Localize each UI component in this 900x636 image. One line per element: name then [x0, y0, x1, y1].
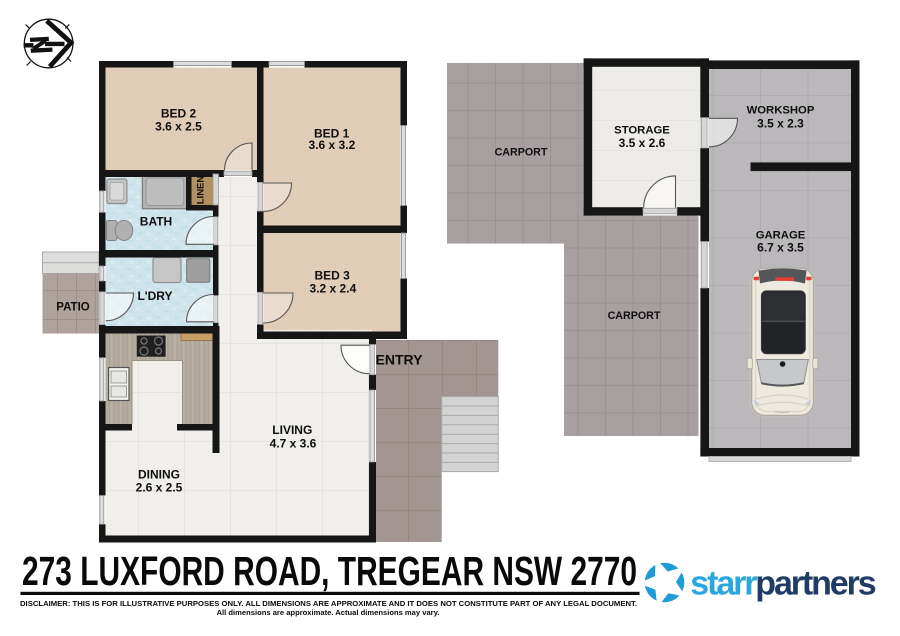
svg-text:STORAGE: STORAGE — [614, 125, 670, 137]
svg-text:4.7 x 3.6: 4.7 x 3.6 — [270, 436, 317, 450]
svg-text:273 LUXFORD ROAD, TREGEAR NSW: 273 LUXFORD ROAD, TREGEAR NSW 2770 — [22, 548, 637, 594]
svg-text:CARPORT: CARPORT — [495, 147, 548, 159]
svg-text:WORKSHOP: WORKSHOP — [747, 105, 815, 117]
svg-text:PATIO: PATIO — [56, 302, 89, 314]
svg-text:3.6 x 2.5: 3.6 x 2.5 — [155, 120, 202, 134]
svg-text:L'DRY: L'DRY — [137, 289, 172, 303]
svg-text:CARPORT: CARPORT — [608, 310, 661, 322]
svg-text:DINING: DINING — [138, 468, 180, 482]
svg-text:6.7 x 3.5: 6.7 x 3.5 — [757, 241, 804, 255]
svg-text:partners: partners — [755, 564, 875, 602]
svg-text:2.6 x 2.5: 2.6 x 2.5 — [136, 481, 183, 495]
svg-text:starr: starr — [690, 564, 757, 602]
svg-text:BATH: BATH — [140, 215, 172, 229]
svg-text:BED 2: BED 2 — [161, 107, 197, 121]
svg-text:3.6 x 3.2: 3.6 x 3.2 — [309, 138, 356, 152]
svg-text:3.2 x 2.4: 3.2 x 2.4 — [310, 281, 357, 295]
svg-text:3.5 x 2.6: 3.5 x 2.6 — [619, 136, 666, 150]
svg-text:LINEN: LINEN — [196, 176, 207, 205]
svg-text:LIVING: LIVING — [272, 423, 312, 437]
svg-text:3.5 x 2.3: 3.5 x 2.3 — [757, 117, 804, 131]
svg-text:All dimensions are approximate: All dimensions are approximate. Actual d… — [217, 608, 440, 617]
svg-text:DISCLAIMER: THIS IS FOR ILLUST: DISCLAIMER: THIS IS FOR ILLUSTRATIVE PUR… — [20, 599, 637, 608]
svg-text:ENTRY: ENTRY — [376, 352, 424, 368]
